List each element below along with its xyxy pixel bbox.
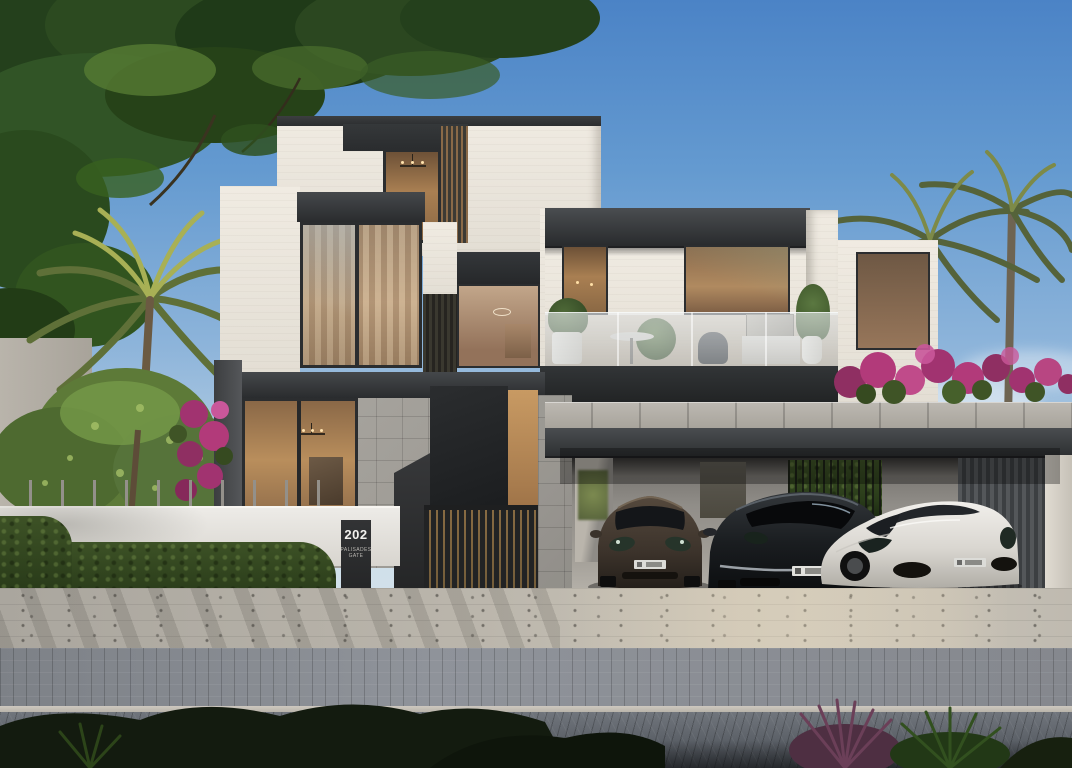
center-white-strip xyxy=(423,222,457,296)
chandelier-stem xyxy=(311,423,312,433)
sunlight-patch xyxy=(560,588,1010,650)
chandelier-stem xyxy=(412,154,413,165)
villa-exterior-scene: 202 PALISADES GATE xyxy=(0,0,1072,768)
chandelier-arms xyxy=(400,165,426,167)
car-dark-bronze-sedan xyxy=(590,496,710,589)
chandelier-arms xyxy=(301,433,325,435)
interior-sideboard xyxy=(505,324,531,358)
window-reflection xyxy=(303,225,355,365)
center-dark-louver-panel xyxy=(423,294,457,376)
bougainvillea-right xyxy=(830,332,1072,412)
tree-shadow-on-sidewalk xyxy=(0,588,560,650)
chandelier-lights xyxy=(401,161,404,164)
window-mullion xyxy=(355,225,359,365)
address-number: 202 xyxy=(344,527,367,542)
left-wing-fascia xyxy=(297,192,425,222)
entry-door-panel xyxy=(430,386,508,510)
address-line2: GATE xyxy=(349,553,364,559)
entry-gate xyxy=(424,505,538,598)
fence-posts xyxy=(0,480,348,508)
carport-beam xyxy=(540,366,838,402)
cars xyxy=(560,448,1060,598)
left-wing-corner-window xyxy=(300,222,422,368)
sconce-lights xyxy=(576,281,579,284)
foreground-plants xyxy=(0,688,1072,768)
hallway-window xyxy=(457,284,540,368)
chandelier-lights xyxy=(302,429,305,432)
right-wing-window-b xyxy=(684,245,790,315)
balcony-glass-railing xyxy=(545,312,838,367)
ring-light xyxy=(493,308,511,316)
left-tower-wall xyxy=(220,186,300,374)
right-wing-fascia xyxy=(545,208,810,248)
